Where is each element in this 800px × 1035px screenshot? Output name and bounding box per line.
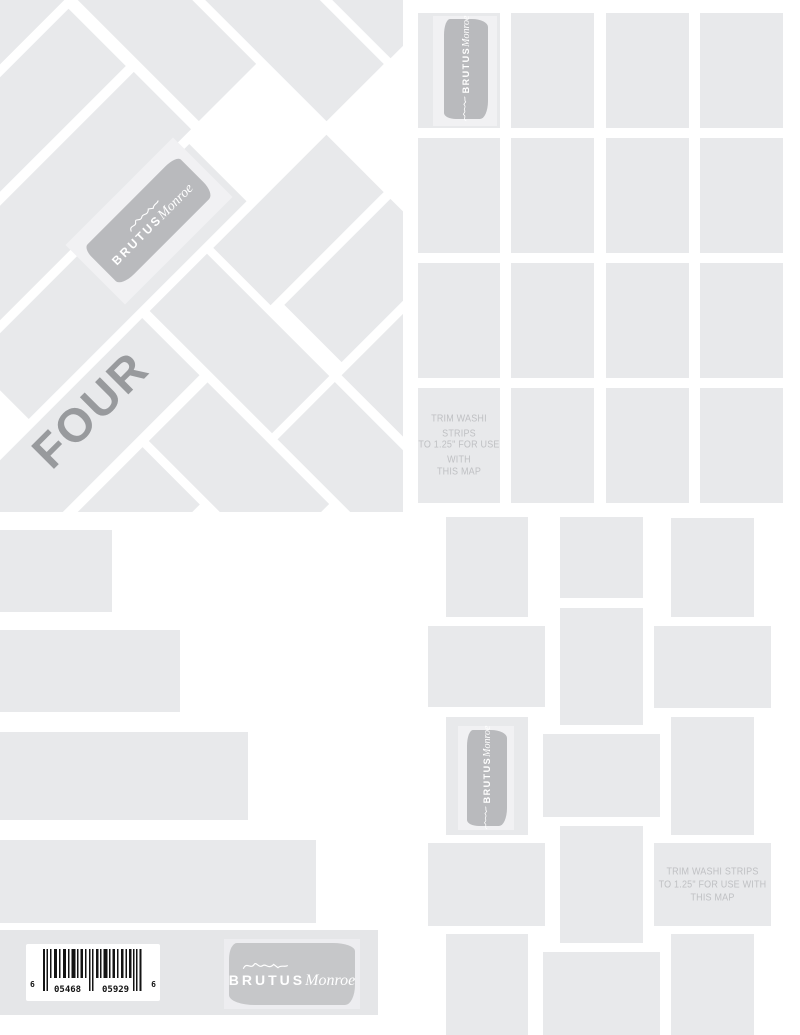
brand-script: Monroe [482,726,493,757]
washi-tile [700,13,783,128]
signature-icon [481,806,490,830]
washi-tile [560,826,643,943]
washi-tile [511,13,594,128]
washi-strip [0,630,180,712]
washi-tile [543,734,660,817]
brand-caps: BRUTUS [229,972,305,988]
washi-tile [560,608,643,725]
trim-instructions: TRIM WASHI STRIPS TO 1.25" FOR USE WITH … [418,388,500,503]
trim-instructions-line: THIS MAP [418,464,500,479]
washi-strip [0,530,112,612]
washi-tile [606,263,689,378]
washi-tile [428,626,545,707]
washi-tile [700,388,783,503]
washi-tile [654,626,771,708]
washi-tile [446,517,528,617]
washi-tile [511,138,594,253]
washi-tile [700,263,783,378]
washi-tile [700,138,783,253]
washi-tile [511,263,594,378]
trim-instructions: TRIM WASHI STRIPS TO 1.25" FOR USE WITH … [654,843,771,926]
brand-script: Monroe [305,972,355,990]
barcode-group-1: 05468 [52,985,83,995]
washi-tile [418,138,500,253]
washi-map-sheet: BRUTUSMonroe FOUR [0,0,800,1035]
signature-icon [460,96,469,122]
washi-tile [671,518,754,617]
brutus-monroe-logo: BRUTUSMonroe [444,19,488,119]
brutus-monroe-logo: BRUTUSMonroe [467,730,507,826]
washi-tile [606,138,689,253]
barcode-right-digit: 6 [151,980,156,989]
brand-caps: BRUTUS [461,47,471,94]
brand-caps: BRUTUS [482,757,492,804]
barcode-group-2: 05929 [100,985,131,995]
washi-tile [671,717,754,835]
washi-tile [543,952,660,1035]
washi-tile [511,388,594,503]
trim-instructions-line: TO 1.25" FOR USE WITH [418,437,500,467]
washi-tile [671,934,754,1035]
washi-tile [446,934,528,1035]
washi-tile [428,843,545,926]
brutus-monroe-logo: BRUTUSMonroe [229,943,355,1005]
washi-tile [606,388,689,503]
upc-barcode: 6 05468 05929 6 [26,944,160,1001]
brand-script: Monroe [461,16,472,47]
washi-strip [0,732,248,820]
washi-strip [0,840,316,923]
washi-tile [560,517,643,598]
barcode-left-digit: 6 [30,980,35,989]
washi-tile [606,13,689,128]
trim-instructions-line: THIS MAP [654,890,771,905]
washi-tile [418,263,500,378]
herringbone-quadrant: BRUTUSMonroe FOUR [0,0,403,512]
diagonal-strip [150,254,330,434]
signature-icon [241,959,289,972]
